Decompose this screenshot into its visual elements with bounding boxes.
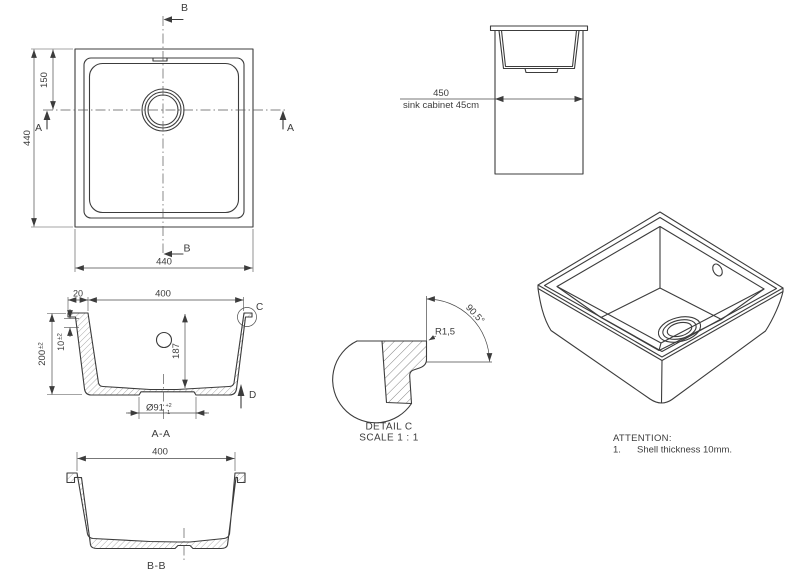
dim-200: 200 — [37, 350, 48, 366]
iso-floor — [601, 288, 722, 351]
cabinet-sink-outer — [499, 31, 579, 69]
section-bb-dim-width: 400 — [77, 447, 235, 472]
marker-d-label: D — [249, 390, 256, 401]
section-marker-b-bottom: B — [164, 243, 191, 258]
dim-drain-tol-plus: +2 — [165, 403, 171, 409]
isometric-view — [538, 212, 783, 403]
plan-dim-drain-offset: 150 — [39, 50, 53, 110]
cabinet-sink-inner — [502, 31, 577, 67]
dim-20: 20 — [73, 289, 83, 299]
cabinet-sink-drain-stub — [525, 69, 558, 73]
radius-label: R1,5 — [435, 327, 455, 338]
section-aa-overflow-hole — [157, 333, 172, 348]
marker-b-label: B — [181, 2, 188, 14]
marker-a-label: A — [35, 122, 42, 134]
svg-text:Ø91+2-1: Ø91+2-1 — [146, 403, 172, 417]
section-arrow-icon — [164, 16, 173, 23]
detail-c-scale: SCALE 1 : 1 — [359, 433, 418, 444]
section-arrow-icon — [44, 111, 51, 121]
plan-dim-width: 440 — [75, 229, 253, 272]
attention-item-number: 1. — [613, 445, 621, 456]
attention-heading: ATTENTION: — [613, 433, 672, 444]
iso-front-edge — [662, 361, 663, 404]
section-marker-b-top: B — [164, 2, 189, 23]
section-aa-dim-depth: 187 — [171, 314, 185, 388]
detail-c-wall-section — [382, 341, 427, 404]
plan-view: B B A A 440 150 — [22, 2, 294, 272]
section-bb-view: 400 B-B — [67, 447, 245, 573]
section-bb-label: B-B — [147, 560, 166, 572]
section-aa-dim-drain: Ø91+2-1 — [126, 397, 209, 419]
countertop — [491, 26, 588, 31]
dim-187: 187 — [171, 343, 182, 359]
angle-label: 90.5° — [463, 302, 486, 326]
radius-callout: R1,5 — [429, 327, 455, 341]
cabinet-body — [495, 31, 583, 175]
dim-400-bb: 400 — [152, 447, 168, 458]
plan-bowl-rim — [84, 58, 244, 218]
marker-a-label: A — [287, 122, 294, 134]
section-bb-shell — [67, 473, 245, 549]
marker-b-label: B — [184, 243, 191, 255]
attention-item-text: Shell thickness 10mm. — [637, 445, 732, 456]
plan-outer-edge — [75, 49, 253, 227]
section-marker-a-left: A — [35, 111, 50, 135]
drawing-sheet: B B A A 440 150 — [0, 0, 800, 579]
direction-marker-d: D — [238, 384, 257, 408]
section-aa-dim-width: 400 — [89, 289, 244, 301]
sink-technical-drawing: B B A A 440 150 — [0, 0, 800, 579]
dim-10-tolerance: ±2 — [58, 333, 64, 340]
plan-bowl-inner — [90, 64, 239, 213]
dim-150: 150 — [39, 72, 50, 88]
dim-440-left: 440 — [22, 130, 33, 146]
dim-10: 10 — [56, 341, 66, 351]
section-arrow-icon — [238, 384, 245, 396]
dim-drain-tol-minus: -1 — [165, 410, 170, 416]
dim-drain: Ø91 — [146, 403, 164, 414]
section-arrow-icon — [280, 111, 287, 121]
section-aa-view: 20 400 200±2 10±2 187 — [37, 289, 263, 441]
detail-c-title: DETAIL C — [365, 422, 412, 433]
section-aa-dim-height: 200±2 — [37, 314, 82, 395]
svg-text:10±2: 10±2 — [56, 333, 66, 351]
section-aa-label: A-A — [151, 428, 170, 440]
section-marker-a-right: A — [280, 111, 294, 135]
dim-450: 450 — [433, 88, 449, 99]
detail-c-view: 90.5° R1,5 DETAIL C SCALE 1 : 1 — [333, 296, 492, 444]
attention-note: ATTENTION: 1. Shell thickness 10mm. — [613, 433, 732, 456]
iso-overflow-hole — [711, 262, 724, 277]
section-aa-shell — [68, 313, 252, 395]
marker-c-label: C — [256, 302, 263, 313]
cabinet-view: 450 sink cabinet 45cm — [400, 26, 588, 174]
cabinet-dim: 450 sink cabinet 45cm — [400, 88, 583, 111]
iso-inner-bowl — [557, 227, 764, 351]
plan-overflow-notch — [153, 59, 167, 62]
cabinet-caption: sink cabinet 45cm — [403, 100, 479, 111]
dim-200-tolerance: ±2 — [39, 342, 45, 349]
dim-440-bottom: 440 — [156, 257, 172, 268]
dim-400: 400 — [155, 289, 171, 300]
svg-text:200±2: 200±2 — [37, 342, 48, 366]
